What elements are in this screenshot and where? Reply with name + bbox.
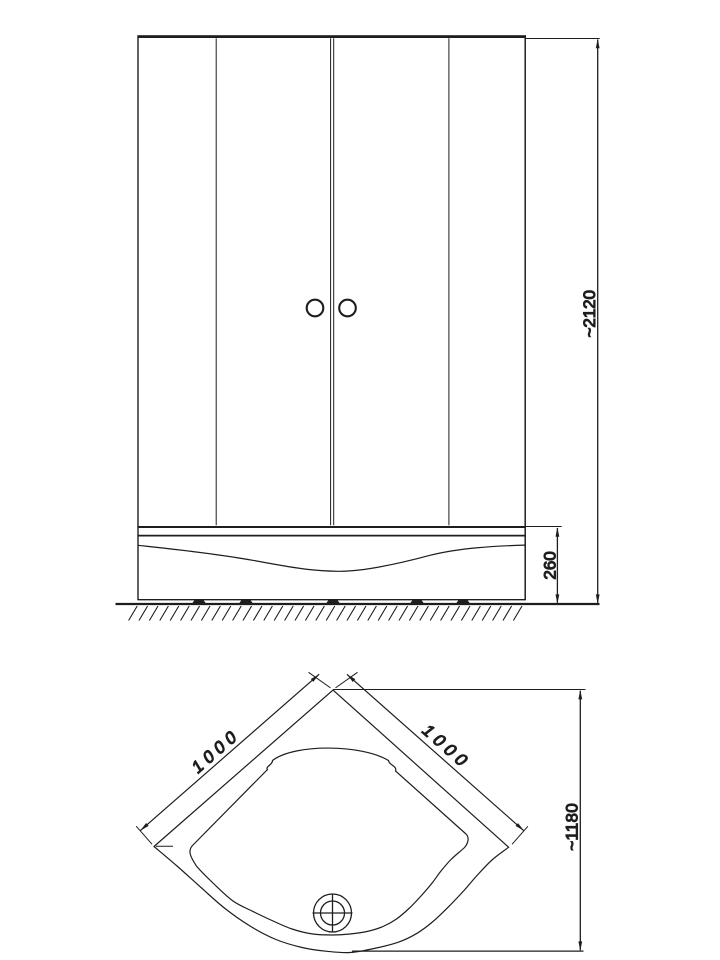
svg-text:~2120: ~2120: [580, 290, 599, 338]
svg-text:260: 260: [540, 551, 559, 579]
svg-text:~1180: ~1180: [562, 803, 581, 851]
